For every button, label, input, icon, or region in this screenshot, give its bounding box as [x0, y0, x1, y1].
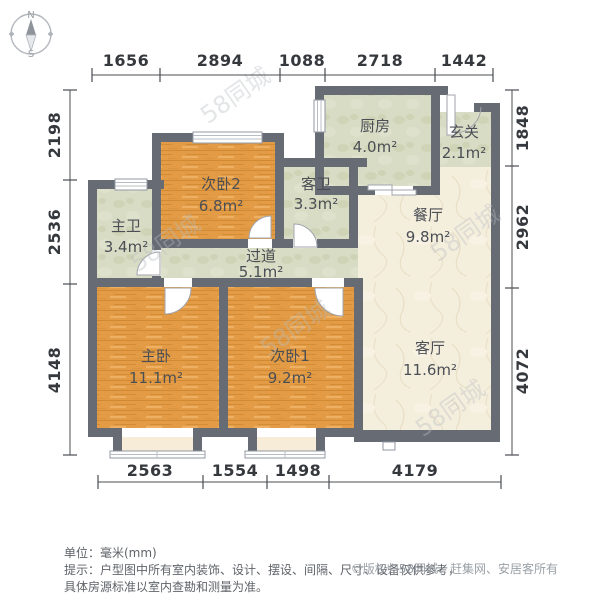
dimension-right: 1848 2962 4072: [505, 90, 532, 455]
entry-area: 2.1m²: [442, 144, 486, 162]
dining-label: 餐厅: [413, 206, 443, 224]
bedroom2-area: 6.8m²: [199, 197, 243, 215]
svg-text:2962: 2962: [513, 204, 532, 251]
master-bedroom-label: 主卧: [141, 347, 171, 365]
svg-text:1554: 1554: [212, 461, 259, 480]
svg-text:2536: 2536: [45, 209, 64, 256]
window-master-bath: [115, 179, 147, 190]
unit-note: 单位：毫米(mm): [64, 545, 157, 562]
master-bedroom-area: 11.1m²: [129, 369, 183, 387]
svg-text:58同城: 58同城: [195, 61, 275, 129]
guest-bath-label: 客卫: [301, 175, 331, 193]
dining-area: 9.8m²: [406, 228, 450, 246]
dimension-top: 1656 2894 1088 2718 1442: [92, 51, 493, 82]
svg-text:4072: 4072: [513, 348, 532, 395]
master-bath-label: 主卫: [111, 217, 141, 235]
compass-south-label: S: [28, 49, 34, 60]
svg-text:1088: 1088: [279, 51, 326, 70]
dimension-left: 2198 2536 4148: [45, 90, 77, 455]
compass-north-label: N: [27, 10, 34, 21]
floor-plan: 58同城 58同城 58同城 58同城 58同城 厨房 4.0m² 玄关 2.1…: [0, 0, 600, 540]
svg-text:2563: 2563: [127, 461, 174, 480]
living-label: 客厅: [415, 339, 445, 357]
hallway-area: 5.1m²: [239, 263, 283, 281]
svg-text:2718: 2718: [357, 51, 404, 70]
entry-label: 玄关: [449, 123, 479, 141]
dining-floor: [440, 167, 491, 195]
svg-text:1442: 1442: [441, 51, 488, 70]
svg-text:4179: 4179: [392, 461, 439, 480]
kitchen-area: 4.0m²: [353, 138, 397, 156]
master-bath-area: 3.4m²: [104, 238, 148, 256]
tip-note-line2: 具体房源标准以室内查勘和测量为准。: [64, 579, 268, 596]
living-area: 11.6m²: [403, 361, 457, 379]
svg-text:1848: 1848: [513, 105, 532, 152]
bedroom2-label: 次卧2: [201, 175, 241, 193]
bay-window-master-bedroom: [110, 437, 205, 458]
bay-window-bedroom1: [245, 437, 325, 458]
svg-text:1656: 1656: [103, 51, 150, 70]
compass-icon: N S: [9, 10, 54, 60]
bedroom1-label: 次卧1: [270, 347, 310, 365]
drain-notch: [383, 442, 395, 450]
svg-text:2198: 2198: [45, 112, 64, 159]
guest-bath-area: 3.3m²: [294, 195, 338, 213]
bedroom1-area: 9.2m²: [268, 369, 312, 387]
window-bedroom2: [193, 132, 262, 143]
svg-text:2894: 2894: [197, 51, 244, 70]
svg-text:1498: 1498: [275, 461, 322, 480]
kitchen-label: 厨房: [360, 117, 390, 135]
svg-text:4148: 4148: [45, 347, 64, 394]
window-kitchen: [314, 100, 325, 132]
copyright-note: ©版权归58同城、赶集网、安居客所有: [351, 560, 558, 577]
floor-plan-page: 58同城 58同城 58同城 58同城 58同城 厨房 4.0m² 玄关 2.1…: [0, 0, 600, 600]
dimension-bottom: 2563 1554 1498 4179: [98, 461, 501, 489]
kitchen-sliding-door: [368, 185, 416, 195]
